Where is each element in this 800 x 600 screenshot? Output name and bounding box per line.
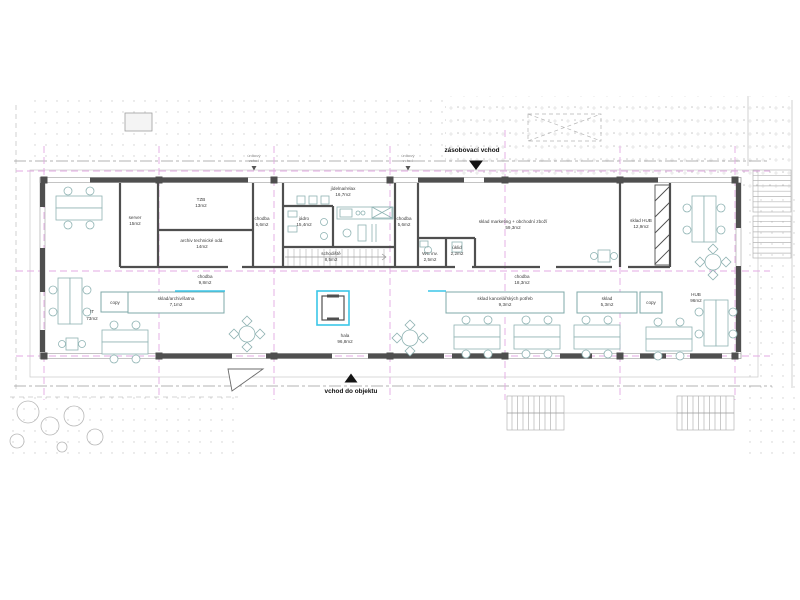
- room-area-server: 15m2: [129, 221, 141, 226]
- escape-entrance-right-label-2: vchod: [403, 158, 413, 163]
- room-label-chodba3: chodba: [396, 216, 412, 221]
- room-label-sklad: sklad: [602, 296, 613, 301]
- room-area-schodiste: 8,5m2: [325, 257, 338, 262]
- room-label-archiv: archiv technické odd.: [180, 238, 223, 243]
- room-area-chodba2: 5,6m2: [256, 222, 269, 227]
- room-label-sklad-marketing: sklad marketing + obchodní zboží: [479, 219, 548, 224]
- room-area-tzb: 13m2: [195, 203, 207, 208]
- room-label-copy-left: copy: [110, 300, 120, 305]
- room-area-chodba1: 9,8m2: [199, 280, 212, 285]
- main-entrance-arrow-icon: [345, 374, 358, 383]
- room-area-hala: 96,8m2: [337, 339, 353, 344]
- room-area-chodba4: 18,3m2: [514, 280, 530, 285]
- room-label-chodba4: chodba: [514, 274, 530, 279]
- floor-plan-canvas: server 15m2 TZB 13m2 archiv technické od…: [0, 0, 800, 600]
- floor-plan-drawing: server 15m2 TZB 13m2 archiv technické od…: [0, 0, 800, 600]
- room-label-uklid: úklid: [452, 245, 462, 250]
- room-label-server: server: [129, 215, 142, 220]
- room-label-sklad-kancelar: sklad kancelářských potřeb: [477, 296, 533, 301]
- supply-entrance-label: zásobovací vchod: [444, 147, 499, 154]
- room-area-sklad: 5,3m2: [601, 302, 614, 307]
- room-label-hub: HUB: [691, 292, 701, 297]
- room-area-hub: 96m2: [690, 298, 702, 303]
- room-label-copy-right: copy: [646, 300, 656, 305]
- room-label-sklad-hub: sklad HUB: [630, 218, 652, 223]
- elevator: [317, 291, 349, 325]
- entrance-ramp: [228, 369, 263, 391]
- room-label-it: IT: [90, 309, 94, 314]
- room-area-uklid: 2,2m2: [451, 251, 464, 256]
- room-area-sklad-marketing: 59,3m2: [505, 225, 521, 230]
- room-area-it: 73m2: [86, 316, 98, 321]
- exterior-stairs-bottom: [507, 396, 734, 430]
- room-area-archiv: 14m2: [196, 244, 208, 249]
- room-label-schodiste: schodiště: [321, 251, 341, 256]
- room-label-hala: hala: [341, 333, 350, 338]
- room-label-tzb: TZB: [197, 197, 206, 202]
- room-area-wcinv: 2,5m2: [424, 257, 437, 262]
- room-area-sklad-hub: 12,9m2: [633, 224, 649, 229]
- room-area-jidelna: 16,7m2: [335, 192, 351, 197]
- room-label-wcinv: WC inv.: [422, 251, 438, 256]
- room-area-sklad-kancelar: 9,3m2: [499, 302, 512, 307]
- room-label-jidelna: jídelna/relax: [330, 186, 356, 191]
- main-entrance-label: vchod do objektu: [325, 388, 378, 395]
- room-area-satna: 7,1m2: [170, 302, 183, 307]
- room-area-jadro: 15,4m2: [296, 222, 312, 227]
- room-area-chodba3: 5,6m2: [398, 222, 411, 227]
- site-object-box: [125, 113, 152, 131]
- dining-stools: [297, 196, 329, 204]
- room-label-jadro: jádro: [298, 216, 310, 221]
- room-label-satna: sklad/archiv/šatna: [158, 296, 195, 301]
- escape-entrance-left-label-2: vchod: [249, 158, 259, 163]
- room-label-chodba1: chodba: [197, 274, 213, 279]
- room-label-chodba2: chodba: [254, 216, 270, 221]
